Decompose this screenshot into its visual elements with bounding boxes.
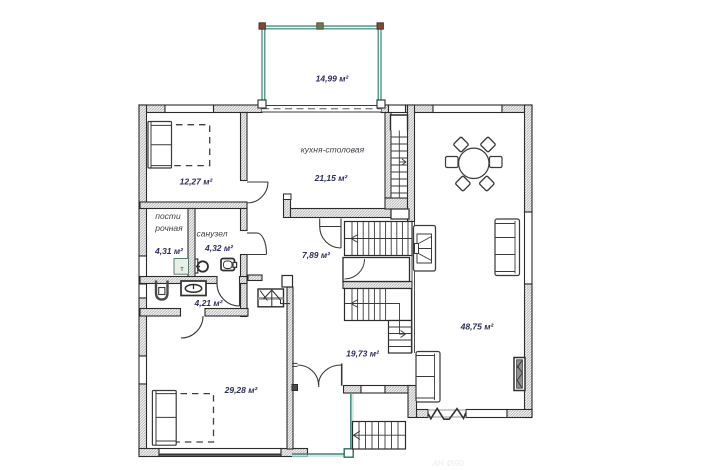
svg-text:4,31 м²: 4,31 м² bbox=[154, 246, 184, 256]
svg-text:48,75 м²: 48,75 м² bbox=[460, 322, 495, 332]
svg-text:кухня-столовая: кухня-столовая bbox=[301, 145, 365, 155]
svg-text:14,99 м²: 14,99 м² bbox=[316, 74, 350, 84]
svg-text:пости: пости bbox=[155, 211, 181, 221]
svg-text:АН 4590: АН 4590 bbox=[431, 459, 464, 468]
svg-text:12,27 м²: 12,27 м² bbox=[180, 177, 214, 187]
svg-text:санузел: санузел bbox=[197, 229, 228, 239]
svg-text:4,32 м²: 4,32 м² bbox=[204, 243, 234, 253]
svg-text:19,73 м²: 19,73 м² bbox=[346, 349, 380, 359]
svg-text:21,15 м²: 21,15 м² bbox=[314, 173, 349, 183]
svg-text:29,28 м²: 29,28 м² bbox=[224, 385, 259, 395]
svg-text:7,89 м²: 7,89 м² bbox=[302, 250, 331, 260]
svg-text:4,21 м²: 4,21 м² bbox=[193, 298, 223, 308]
svg-text:рочная: рочная bbox=[154, 223, 183, 233]
